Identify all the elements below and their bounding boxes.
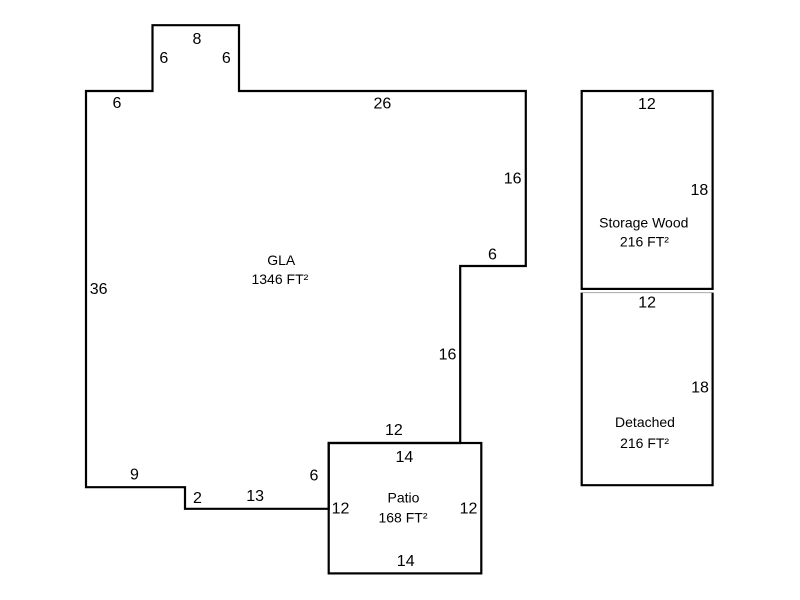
svg-text:13: 13 bbox=[246, 488, 264, 505]
svg-text:GLA: GLA bbox=[267, 252, 296, 268]
svg-text:6: 6 bbox=[488, 246, 497, 263]
svg-text:14: 14 bbox=[397, 553, 415, 570]
svg-text:12: 12 bbox=[638, 96, 656, 113]
svg-text:6: 6 bbox=[113, 95, 122, 112]
svg-text:8: 8 bbox=[193, 31, 202, 48]
svg-text:12: 12 bbox=[460, 501, 478, 518]
svg-text:18: 18 bbox=[691, 380, 709, 397]
svg-text:36: 36 bbox=[90, 281, 108, 298]
svg-text:Storage Wood: Storage Wood bbox=[599, 215, 688, 231]
svg-text:216 FT²: 216 FT² bbox=[620, 234, 669, 250]
svg-text:16: 16 bbox=[439, 347, 457, 364]
svg-text:16: 16 bbox=[504, 171, 522, 188]
svg-text:216 FT²: 216 FT² bbox=[620, 435, 669, 451]
svg-text:Patio: Patio bbox=[388, 490, 420, 506]
svg-text:Detached: Detached bbox=[615, 414, 675, 430]
svg-text:26: 26 bbox=[374, 95, 392, 112]
svg-text:6: 6 bbox=[309, 468, 318, 485]
svg-text:12: 12 bbox=[385, 422, 403, 439]
svg-text:6: 6 bbox=[222, 50, 231, 67]
svg-text:1346 FT²: 1346 FT² bbox=[251, 271, 308, 287]
svg-text:18: 18 bbox=[691, 182, 709, 199]
svg-text:6: 6 bbox=[159, 50, 168, 67]
svg-text:12: 12 bbox=[332, 501, 350, 518]
svg-text:12: 12 bbox=[638, 295, 656, 312]
svg-text:14: 14 bbox=[396, 449, 414, 466]
svg-text:9: 9 bbox=[130, 466, 139, 483]
svg-text:168 FT²: 168 FT² bbox=[378, 509, 427, 525]
svg-text:2: 2 bbox=[193, 490, 202, 507]
